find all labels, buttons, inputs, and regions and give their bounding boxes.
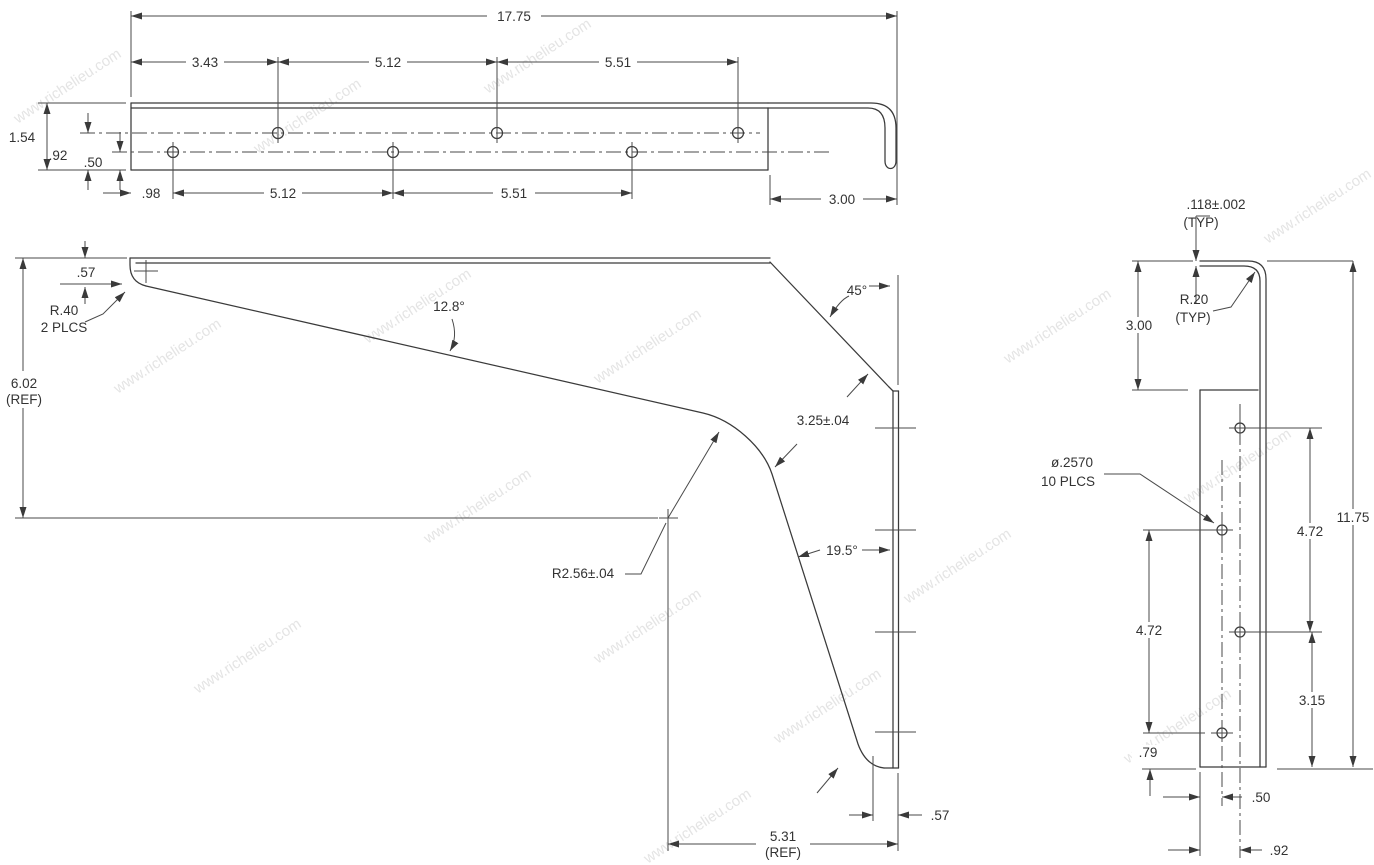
dim-overall-length: 17.75 bbox=[497, 9, 531, 24]
front-view-dimensions: 6.02 (REF) .57 R.40 2 PLCS 12.8° 45° 3.2… bbox=[2, 241, 949, 860]
watermark-text: www.richelieu.com bbox=[10, 45, 124, 127]
watermark-text: www.richelieu.com bbox=[420, 465, 534, 547]
dim-height-ref-suffix: (REF) bbox=[6, 392, 42, 407]
dim-leg-span-suffix: (REF) bbox=[765, 845, 801, 860]
dim-neck-width: 3.25±.04 bbox=[797, 413, 850, 428]
dim-lower-row-offset: .50 bbox=[84, 155, 103, 170]
dim-lower-span-2: 5.51 bbox=[501, 186, 527, 201]
bracket-engineering-drawing: www.richelieu.com www.richelieu.com www.… bbox=[0, 0, 1374, 865]
watermark-text: www.richelieu.com bbox=[590, 585, 704, 667]
watermark-text: www.richelieu.com bbox=[1180, 425, 1294, 507]
side-view-part-outline bbox=[1200, 261, 1266, 767]
dim-pitch-left: 4.72 bbox=[1136, 623, 1162, 638]
dim-end-offset: .98 bbox=[142, 186, 161, 201]
watermark-text: www.richelieu.com bbox=[250, 75, 364, 157]
watermark-text: www.richelieu.com bbox=[640, 785, 754, 865]
watermark-layer: www.richelieu.com www.richelieu.com www.… bbox=[10, 15, 1374, 865]
dim-bend-radius: R.20 bbox=[1180, 292, 1209, 307]
watermark-text: www.richelieu.com bbox=[190, 615, 304, 697]
dim-tip-drop: .57 bbox=[77, 265, 96, 280]
dim-hole-diameter: ø.2570 bbox=[1051, 455, 1093, 470]
dim-bottom-pitch: 3.15 bbox=[1299, 693, 1325, 708]
dim-chamfer-angle: 45° bbox=[847, 283, 867, 298]
watermark-text: www.richelieu.com bbox=[590, 305, 704, 387]
dim-tip-radius-qty: 2 PLCS bbox=[41, 320, 88, 335]
dim-hole-span-3: 5.51 bbox=[605, 55, 631, 70]
dim-drop: 3.00 bbox=[1126, 318, 1152, 333]
watermark-text: www.richelieu.com bbox=[1260, 165, 1374, 247]
engineering-drawing-page: www.richelieu.com www.richelieu.com www.… bbox=[0, 0, 1374, 865]
dim-thickness: .118±.002 bbox=[1187, 197, 1246, 212]
watermark-text: www.richelieu.com bbox=[900, 525, 1014, 607]
top-view-part-outline bbox=[131, 103, 896, 170]
dim-leg-span-value: 5.31 bbox=[770, 829, 796, 844]
dim-thickness-typ: (TYP) bbox=[1183, 215, 1218, 230]
dim-flange-width: 3.00 bbox=[829, 192, 855, 207]
dim-hole-span-2: 5.12 bbox=[375, 55, 401, 70]
dim-leg-width: .57 bbox=[931, 808, 950, 823]
dim-plate-height: 11.75 bbox=[1337, 510, 1370, 525]
watermark-text: www.richelieu.com bbox=[110, 315, 224, 397]
dim-edge-offset: .79 bbox=[1139, 745, 1158, 760]
dim-pitch-right: 4.72 bbox=[1297, 524, 1323, 539]
dim-bend-radius-typ: (TYP) bbox=[1175, 310, 1210, 325]
dim-lower-span-1: 5.12 bbox=[270, 186, 296, 201]
dim-col-offset-left: .50 bbox=[1252, 790, 1271, 805]
dim-col-offset-right: .92 bbox=[1270, 843, 1289, 858]
dim-height-ref-value: 6.02 bbox=[11, 376, 37, 391]
dim-bar-width: 1.54 bbox=[9, 130, 36, 145]
dim-throat-radius: R2.56±.04 bbox=[552, 566, 615, 581]
dim-hole-qty: 10 PLCS bbox=[1041, 474, 1095, 489]
dim-tip-radius: R.40 bbox=[50, 303, 79, 318]
watermark-text: www.richelieu.com bbox=[770, 665, 884, 747]
dim-upper-row-offset: .92 bbox=[49, 148, 68, 163]
dim-leg-angle: 19.5° bbox=[826, 543, 858, 558]
top-view: 17.75 3.43 5.12 5.51 1.54 .92 .50 .98 bbox=[9, 8, 897, 207]
dim-taper-angle: 12.8° bbox=[433, 299, 465, 314]
dim-hole-span-1: 3.43 bbox=[192, 55, 218, 70]
front-view: 6.02 (REF) .57 R.40 2 PLCS 12.8° 45° 3.2… bbox=[2, 241, 949, 860]
watermark-text: www.richelieu.com bbox=[1000, 285, 1114, 367]
